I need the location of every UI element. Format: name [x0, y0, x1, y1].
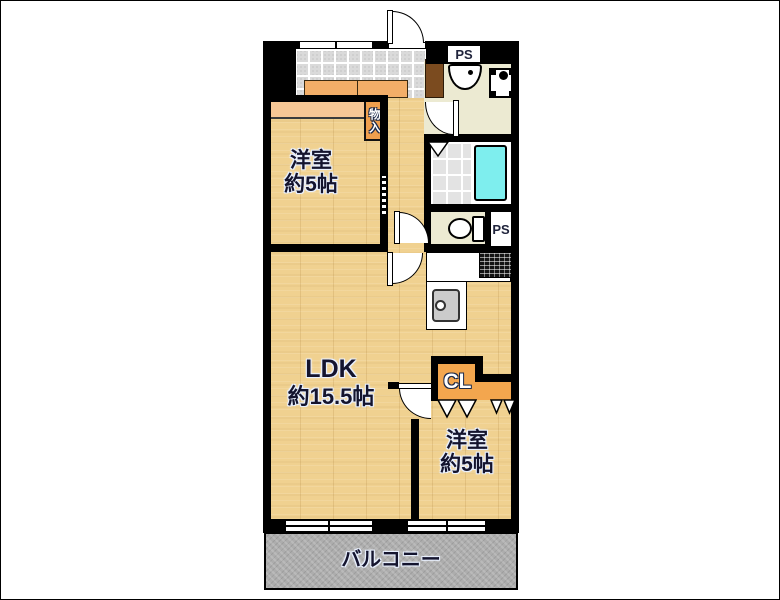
entrance-high-window — [299, 41, 373, 49]
wall — [263, 95, 388, 102]
toilet-door-leaf — [394, 211, 400, 244]
entrance-sill — [389, 42, 425, 49]
wall — [380, 95, 388, 252]
balcony-label-text: バルコニー — [264, 549, 518, 572]
entrance-tall-cabinet — [425, 59, 444, 98]
floorplan-canvas: 物入 CL PS PS — [0, 0, 780, 600]
bedroom1-closet-strip — [271, 101, 364, 119]
wall — [372, 519, 408, 533]
ldk-label-line2: 約15.5帖 — [256, 384, 406, 409]
pan-corner — [491, 70, 496, 75]
washroom-door-leaf — [453, 100, 459, 137]
closet-folding-door-icon — [490, 399, 516, 415]
washbasin-drain — [468, 70, 473, 75]
bedroom2-balcony-window — [408, 519, 485, 533]
hall-to-ldk-door-leaf — [387, 252, 393, 286]
closet-label: CL — [444, 370, 472, 394]
ldk-balcony-window — [286, 519, 372, 533]
bedroom2-label: 洋室 約5帖 — [407, 429, 527, 477]
pipe-space-top: PS — [448, 46, 480, 62]
toilet-bowl — [448, 218, 472, 239]
bedroom2-label-line2: 約5帖 — [407, 453, 527, 477]
bedroom1-label-line2: 約5帖 — [246, 173, 376, 197]
bedroom1-sliding-door — [382, 176, 386, 214]
gas-stove-icon — [479, 252, 512, 278]
sink-drain — [435, 300, 446, 311]
wall — [424, 204, 519, 212]
closet-folding-door-icon — [437, 399, 477, 419]
wall — [475, 374, 519, 382]
wall — [263, 244, 388, 252]
closet-cl-right — [478, 381, 515, 400]
pan-faucet — [499, 71, 508, 80]
window-tick — [446, 521, 448, 531]
bathroom-folding-door-icon — [427, 141, 449, 158]
wall — [263, 519, 286, 533]
entrance-door-leaf — [387, 10, 393, 44]
pipe-space-top-label: PS — [455, 47, 472, 62]
bedroom1-label-line1: 洋室 — [246, 149, 376, 173]
wall — [485, 519, 519, 533]
pipe-space-bottom-label: PS — [492, 222, 509, 237]
toilet-icon — [448, 215, 486, 243]
window-tick — [335, 42, 337, 48]
bedroom1-label: 洋室 約5帖 — [246, 149, 376, 197]
ldk-label: LDK 約15.5帖 — [256, 355, 406, 409]
ldk-label-line1: LDK — [256, 355, 406, 384]
window-tick — [328, 521, 330, 531]
balcony-label: バルコニー — [264, 549, 518, 572]
pipe-space-bottom: PS — [491, 212, 511, 246]
bathtub-icon — [474, 145, 507, 201]
toilet-tank — [472, 216, 485, 242]
pan-corner — [491, 91, 496, 96]
entrance-door-arc — [392, 11, 424, 43]
kitchen-sink-icon — [432, 289, 460, 322]
bedroom2-label-line1: 洋室 — [407, 429, 527, 453]
closet-cl-left: CL — [437, 363, 478, 400]
wall — [263, 41, 271, 533]
wall-block — [263, 41, 296, 95]
